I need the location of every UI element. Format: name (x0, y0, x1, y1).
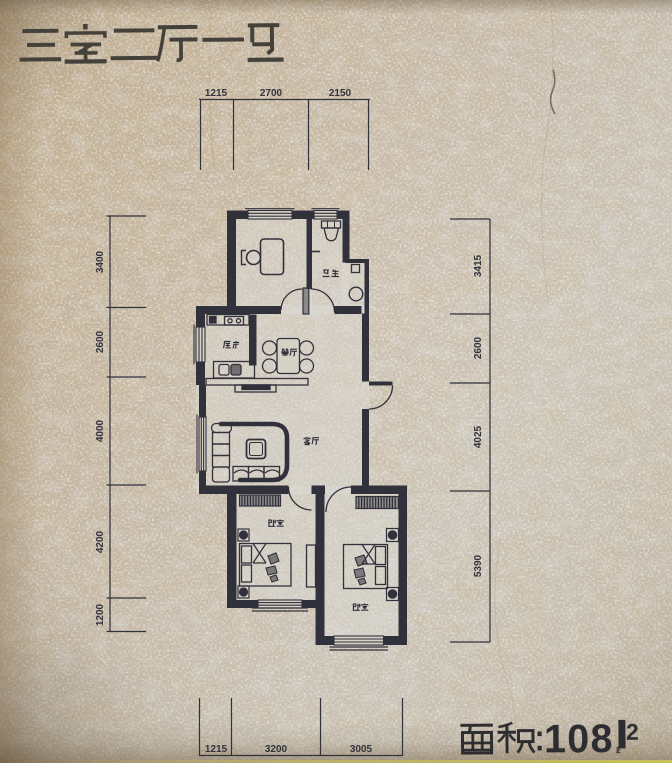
svg-text:108: 108 (544, 717, 614, 762)
svg-text:2: 2 (616, 745, 621, 755)
svg-text:2: 2 (626, 719, 639, 745)
